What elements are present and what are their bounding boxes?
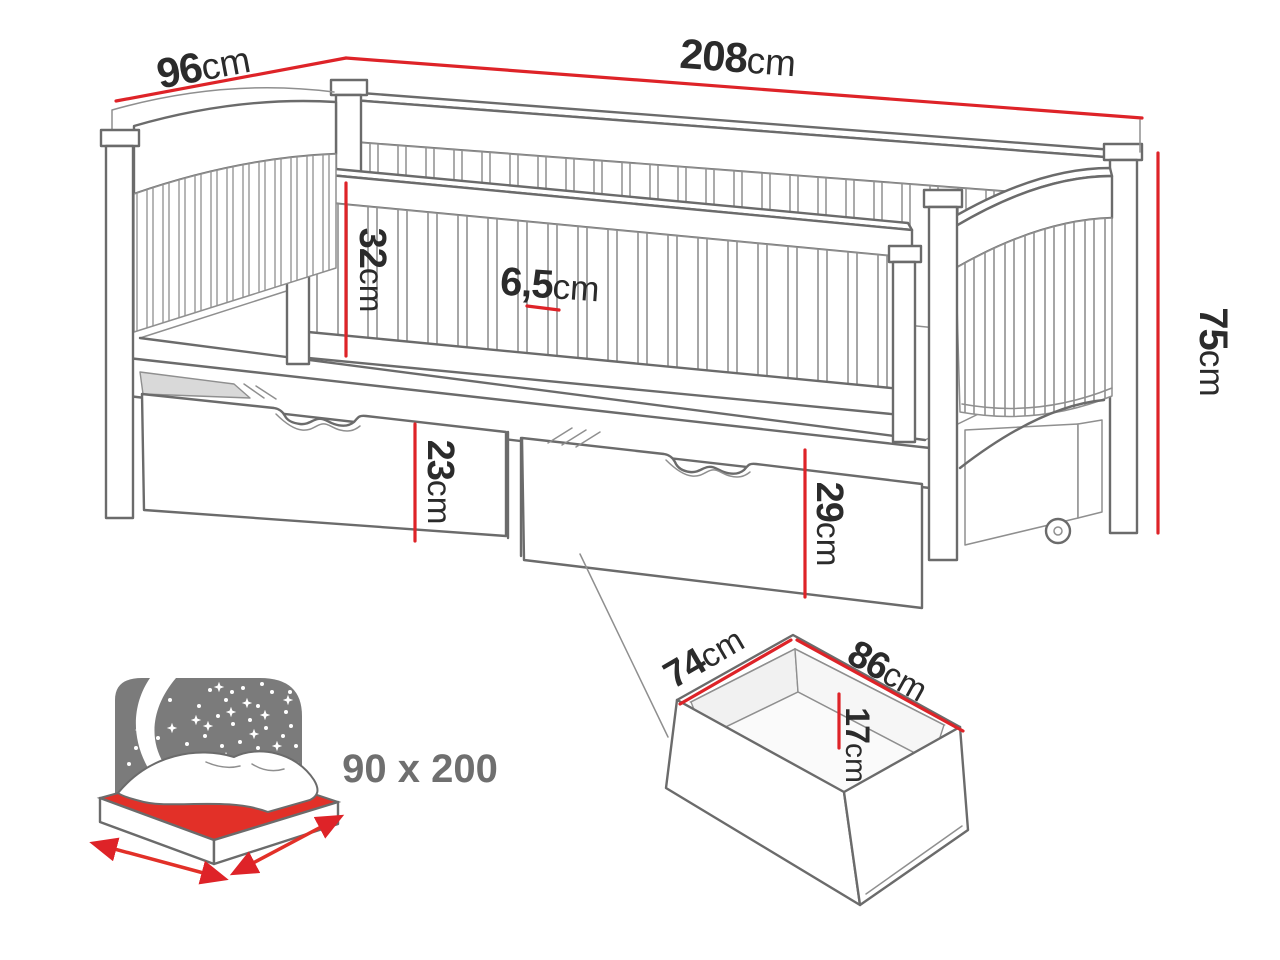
bed-length-unit: cm: [745, 40, 797, 85]
headboard-post-cap: [101, 130, 139, 146]
back-left-post-cap: [331, 80, 367, 95]
drawer-detail-leader-line: [580, 554, 668, 737]
headboard-post: [106, 146, 133, 518]
right-drawer-height-unit: cm: [809, 522, 846, 567]
underbed-drawer-caster: [965, 420, 1102, 545]
guard-rail-height-value: 32: [351, 228, 393, 268]
mattress-size-label: 90 x 200: [342, 747, 498, 791]
guard-rail-right-post-cap: [889, 246, 921, 262]
guard-rail-height-label: 32cm: [351, 228, 393, 313]
slat-gap-value: 6,5: [499, 260, 555, 308]
caster-wheel: [1046, 519, 1070, 543]
bed-line-drawing: [101, 80, 1142, 737]
bed-length-value: 208: [678, 30, 749, 82]
bed-dimension-diagram: 96cm 208cm 75cm 32cm 6,5cm 23cm 29cm 74c…: [0, 0, 1280, 960]
bed-height-value: 75: [1191, 307, 1235, 350]
underbed-drawer-end: [1078, 420, 1102, 518]
drawer-inner-height-label: 17cm: [838, 707, 876, 783]
footboard-front-post: [929, 207, 957, 560]
left-drawer-height-label: 23cm: [419, 440, 461, 525]
drawer-inner-height-unit: cm: [839, 743, 872, 783]
left-drawer-height-unit: cm: [420, 480, 457, 525]
diagram-page: 96cm 208cm 75cm 32cm 6,5cm 23cm 29cm 74c…: [0, 0, 1280, 960]
drawer-inner-height-value: 17: [838, 707, 876, 743]
footboard-front-post-cap: [924, 190, 962, 207]
bed-height-unit: cm: [1192, 350, 1231, 397]
left-drawer-height-value: 23: [419, 440, 461, 480]
bed-height-label: 75cm: [1191, 307, 1235, 396]
guard-rail-right-post: [893, 262, 915, 442]
bed-depth-unit: cm: [198, 39, 254, 88]
right-drawer-height-label: 29cm: [808, 482, 850, 567]
footboard-back-post-cap: [1104, 144, 1142, 160]
bed-length-label: 208cm: [678, 30, 798, 86]
mattress-size-icon: [96, 677, 338, 878]
slat-gap-unit: cm: [551, 267, 601, 309]
right-drawer-height-value: 29: [808, 482, 850, 522]
drawer-divider: [508, 432, 521, 556]
footboard-back-post: [1110, 160, 1137, 533]
guard-rail-height-unit: cm: [352, 268, 389, 313]
